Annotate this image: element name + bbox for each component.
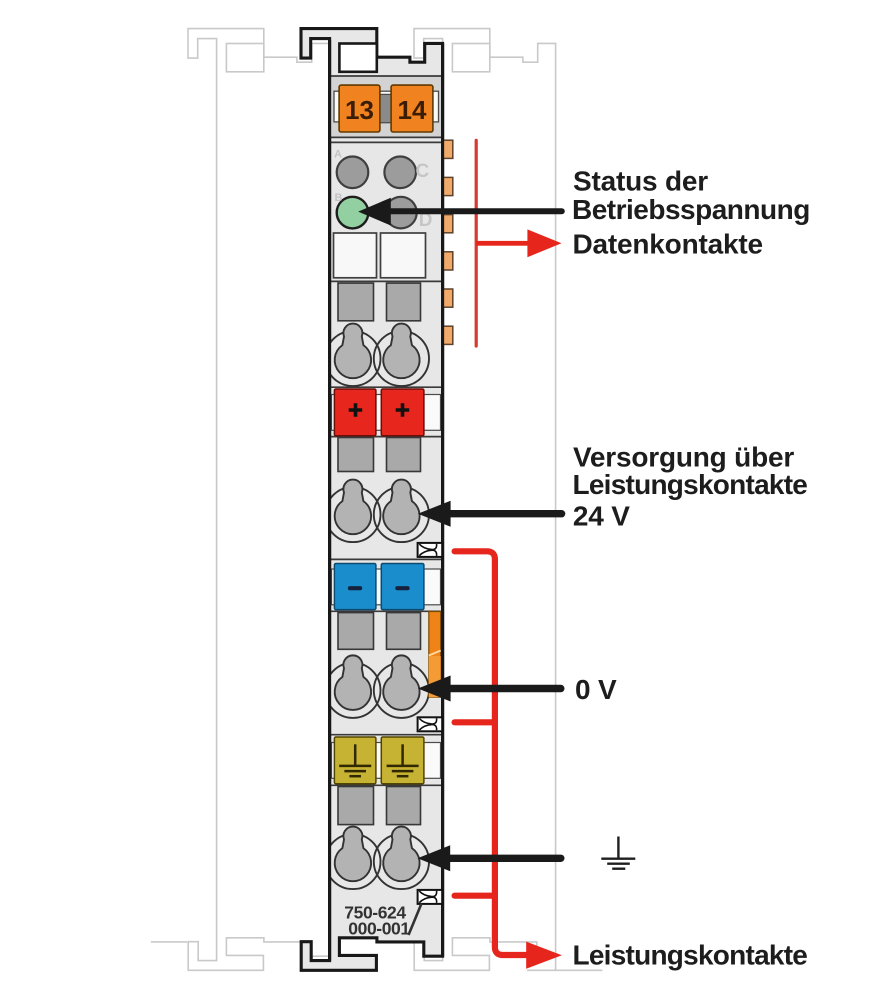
svg-text:Status der: Status der bbox=[573, 166, 708, 197]
svg-text:000-001: 000-001 bbox=[348, 919, 410, 939]
svg-text:C: C bbox=[416, 161, 430, 182]
svg-text:A: A bbox=[334, 149, 342, 161]
svg-text:0 V: 0 V bbox=[575, 674, 617, 705]
svg-text:13: 13 bbox=[345, 95, 374, 125]
svg-text:Betriebsspannung: Betriebsspannung bbox=[572, 194, 810, 225]
svg-text:Leistungskontakte: Leistungskontakte bbox=[573, 469, 808, 500]
svg-text:B: B bbox=[335, 192, 343, 204]
svg-text:Datenkontakte: Datenkontakte bbox=[573, 229, 763, 260]
svg-text:Leistungskontakte: Leistungskontakte bbox=[573, 940, 808, 971]
svg-text:14: 14 bbox=[398, 95, 427, 125]
svg-text:24 V: 24 V bbox=[573, 501, 630, 532]
